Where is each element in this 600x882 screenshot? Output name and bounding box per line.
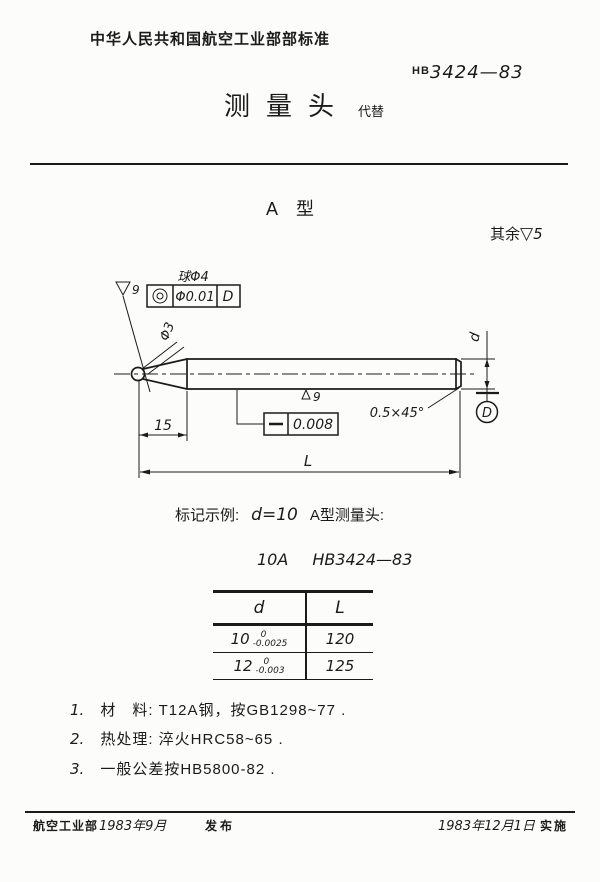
datum-symbol: D bbox=[476, 393, 499, 423]
table-row: 12 0 -0.003 bbox=[213, 653, 307, 680]
concentricity-icon bbox=[153, 289, 167, 303]
implementation-label: 实施 bbox=[540, 817, 568, 834]
issuing-organization: 航空工业部 bbox=[33, 817, 98, 834]
tip-length-value: 15 bbox=[154, 418, 172, 434]
designation-code: 10A bbox=[257, 550, 288, 569]
issue-label: 发布 bbox=[205, 817, 235, 834]
chamfer-label: 0.5×45° bbox=[370, 406, 425, 421]
note-material: 1. 材 料: T12A钢，按GB1298~77 . bbox=[70, 699, 346, 720]
ball-roughness-mark: 9 bbox=[116, 282, 150, 392]
note-general-tolerance: 3. 一般公差按HB5800-82 . bbox=[70, 758, 276, 779]
body-roughness-value: 9 bbox=[313, 390, 321, 404]
leader-line bbox=[123, 296, 150, 392]
d-nominal: 12 bbox=[233, 657, 252, 675]
ball-diameter-label: 球Φ4 bbox=[177, 270, 209, 285]
concentricity-frame: Φ0.01 D bbox=[147, 285, 240, 307]
concentricity-tolerance: Φ0.01 bbox=[175, 290, 214, 305]
stem-diameter-callout: Φ3 bbox=[142, 320, 184, 374]
d-nominal: 10 bbox=[231, 630, 250, 648]
column-header-d: d bbox=[213, 593, 307, 626]
shank-diameter-label: d bbox=[466, 331, 484, 343]
note-heat-treatment: 2. 热处理: 淬火HRC58~65 . bbox=[70, 728, 284, 749]
roughness-triangle-icon bbox=[116, 282, 130, 295]
implementation-date: 1983年12月1日 bbox=[438, 815, 535, 834]
concentricity-datum: D bbox=[223, 289, 234, 305]
dimension-table: d L 10 0 -0.0025 120 12 0 -0.003 125 bbox=[213, 590, 373, 680]
L-value: 125 bbox=[307, 653, 373, 680]
leader-line bbox=[428, 388, 459, 408]
shank-diameter-dimension: d bbox=[461, 331, 495, 392]
table-row: 10 0 -0.0025 bbox=[213, 626, 307, 653]
d-tolerance: 0 -0.003 bbox=[256, 658, 285, 677]
marking-example-formula: d=10 bbox=[251, 505, 298, 525]
datum-label: D bbox=[482, 406, 492, 421]
L-value: 120 bbox=[307, 626, 373, 653]
footer-divider bbox=[25, 811, 575, 813]
overall-length-label: L bbox=[304, 452, 312, 470]
issue-date: 1983年9月 bbox=[99, 815, 166, 834]
body-roughness-mark: 9 bbox=[302, 390, 321, 404]
ball-roughness-value: 9 bbox=[132, 283, 140, 297]
straightness-tolerance: 0.008 bbox=[293, 417, 333, 433]
marking-example: 标记示例: d=10 A型测量头: bbox=[175, 504, 384, 525]
marking-example-suffix: A型测量头: bbox=[310, 504, 384, 525]
roughness-triangle-icon bbox=[302, 390, 310, 399]
stem-diameter-label: Φ3 bbox=[157, 320, 178, 343]
leader-line bbox=[237, 390, 264, 424]
technical-drawing: 9 球Φ4 Φ0.01 D Φ3 9 bbox=[0, 0, 600, 500]
standard-document-page: 中华人民共和国航空工业部部标准 HB3424—83 测量头 代替 A 型 其余▽… bbox=[0, 0, 600, 882]
straightness-frame: 0.008 bbox=[237, 390, 338, 435]
column-header-L: L bbox=[307, 593, 373, 626]
designation-standard: HB3424—83 bbox=[312, 550, 412, 569]
d-tolerance: 0 -0.0025 bbox=[253, 631, 288, 650]
designation-line: 10A HB3424—83 bbox=[257, 550, 412, 569]
chamfer-callout: 0.5×45° bbox=[370, 388, 459, 421]
tip-length-dimension: 15 bbox=[139, 380, 187, 478]
marking-example-prefix: 标记示例: bbox=[175, 504, 239, 525]
